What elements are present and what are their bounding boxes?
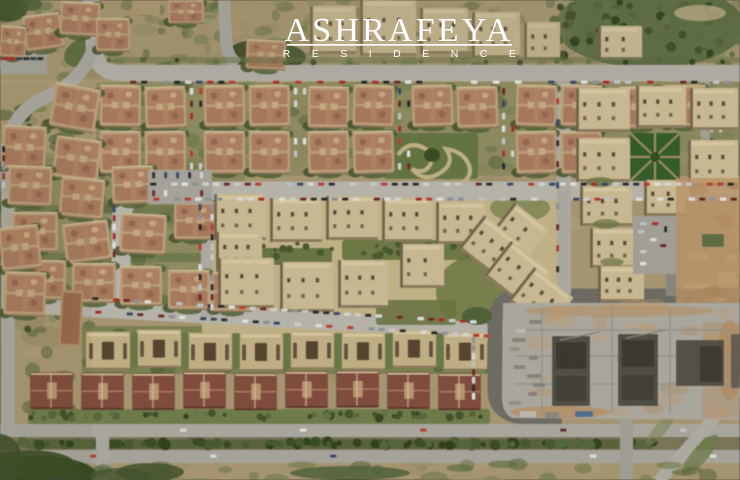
svg-text:ASHRAFEYA: ASHRAFEYA <box>284 12 513 49</box>
svg-text:RESIDENCE: RESIDENCE <box>283 48 538 60</box>
